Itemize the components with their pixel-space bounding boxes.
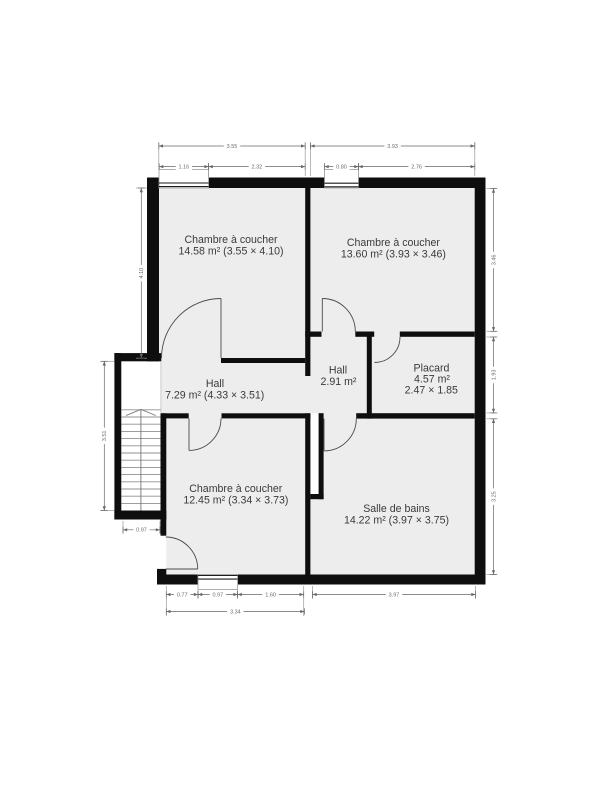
svg-text:3.46: 3.46 <box>491 255 497 266</box>
svg-text:Chambre à coucher: Chambre à coucher <box>184 234 278 246</box>
svg-text:Salle de bains: Salle de bains <box>363 503 430 515</box>
svg-text:3.51: 3.51 <box>102 431 108 442</box>
svg-text:2.76: 2.76 <box>411 165 422 171</box>
svg-text:2.32: 2.32 <box>252 165 263 171</box>
svg-text:0.97: 0.97 <box>212 592 223 598</box>
svg-text:4.10: 4.10 <box>139 268 145 279</box>
svg-text:0.77: 0.77 <box>177 592 188 598</box>
svg-text:14.58 m² (3.55 × 4.10): 14.58 m² (3.55 × 4.10) <box>178 246 283 258</box>
svg-text:3.25: 3.25 <box>491 491 497 502</box>
svg-text:Chambre à coucher: Chambre à coucher <box>347 237 441 249</box>
svg-text:0.97: 0.97 <box>136 528 147 534</box>
svg-text:Hall: Hall <box>206 378 224 390</box>
svg-text:2.47 × 1.85: 2.47 × 1.85 <box>405 384 458 396</box>
svg-text:Hall: Hall <box>329 364 347 376</box>
svg-text:14.22 m² (3.97 × 3.75): 14.22 m² (3.97 × 3.75) <box>344 515 449 527</box>
svg-text:3.93: 3.93 <box>387 144 398 150</box>
svg-text:1.16: 1.16 <box>179 165 190 171</box>
svg-text:Chambre à coucher: Chambre à coucher <box>189 483 283 495</box>
svg-text:12.45 m² (3.34 × 3.73): 12.45 m² (3.34 × 3.73) <box>183 494 288 506</box>
svg-text:3.34: 3.34 <box>230 609 241 615</box>
svg-text:1.60: 1.60 <box>265 592 276 598</box>
svg-text:7.29 m² (4.33 × 3.51): 7.29 m² (4.33 × 3.51) <box>165 390 264 402</box>
svg-text:2.91 m²: 2.91 m² <box>321 376 357 388</box>
svg-text:0.80: 0.80 <box>336 165 347 171</box>
svg-text:3.97: 3.97 <box>389 592 400 598</box>
svg-text:13.60 m² (3.93 × 3.46): 13.60 m² (3.93 × 3.46) <box>341 248 446 260</box>
svg-text:1.93: 1.93 <box>491 370 497 381</box>
svg-text:3.55: 3.55 <box>227 144 238 150</box>
